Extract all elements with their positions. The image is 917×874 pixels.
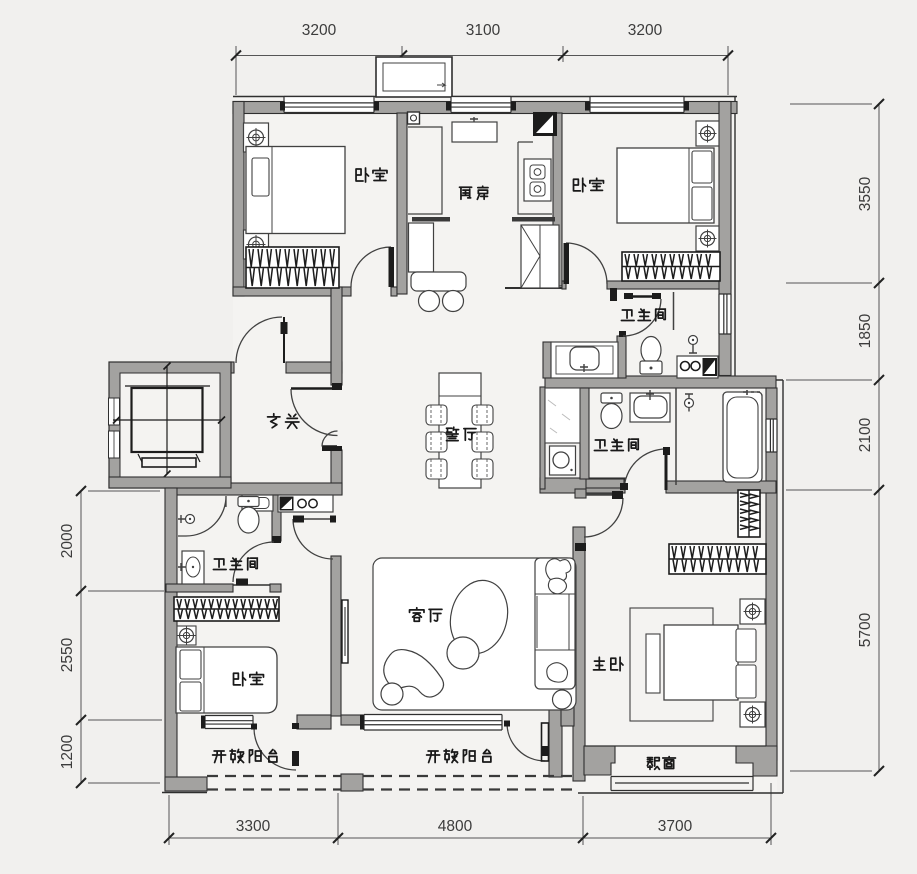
svg-text:3550: 3550 (857, 176, 874, 211)
svg-text:2100: 2100 (857, 417, 874, 452)
svg-text:3700: 3700 (658, 818, 693, 835)
svg-text:2000: 2000 (59, 523, 76, 558)
svg-text:3200: 3200 (302, 22, 337, 39)
svg-text:1850: 1850 (857, 313, 874, 348)
svg-text:5700: 5700 (857, 612, 874, 647)
svg-text:3300: 3300 (236, 818, 271, 835)
svg-text:4800: 4800 (438, 818, 473, 835)
svg-text:3200: 3200 (628, 22, 663, 39)
svg-text:3100: 3100 (466, 22, 501, 39)
svg-text:2550: 2550 (59, 637, 76, 672)
svg-text:1200: 1200 (59, 734, 76, 769)
